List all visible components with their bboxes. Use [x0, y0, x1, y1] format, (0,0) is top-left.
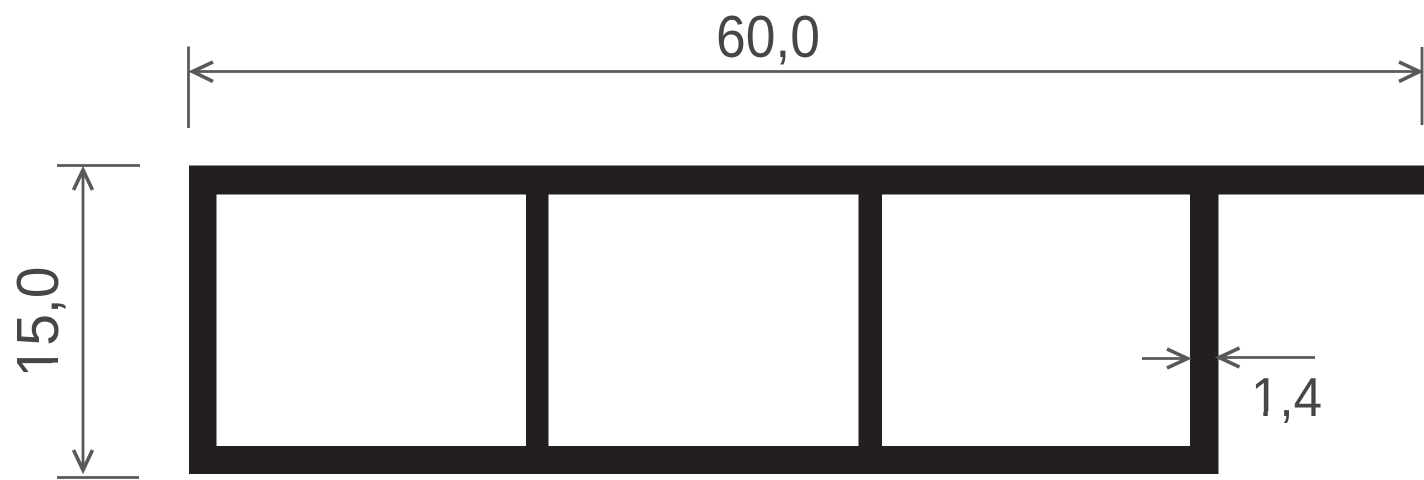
svg-text:15,0: 15,0	[5, 267, 71, 378]
svg-text:60,0: 60,0	[716, 4, 820, 70]
svg-text:1,4: 1,4	[1251, 366, 1322, 428]
